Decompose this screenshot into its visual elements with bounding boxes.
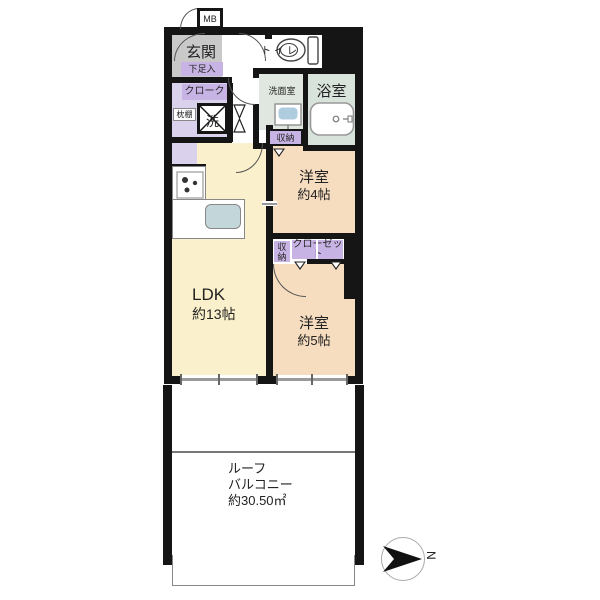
shoe-cabinet-label: 下足入 (181, 62, 223, 76)
north-label: N (424, 551, 438, 565)
balcony-rail-right (355, 385, 364, 565)
wall-under-cloak (164, 137, 232, 143)
bathroom-label: 浴室 (308, 80, 355, 101)
sliding-window-icon-1 (180, 375, 258, 385)
sliding-door-tick (262, 203, 277, 205)
wall-under-toilet (253, 68, 363, 74)
wall-block-mid-right (344, 233, 355, 299)
wall-under-entrance (164, 77, 232, 83)
entrance-label: 玄関 (186, 41, 216, 62)
ldk-size: 約13帖 (192, 304, 236, 324)
stove-icon (176, 171, 204, 199)
balcony-divider-line (172, 451, 355, 453)
wall-under-bath (303, 145, 363, 151)
folding-door-icon (233, 104, 246, 133)
toilet-label: トイレ (261, 42, 313, 57)
pillow-shelf-label: 枕棚 (173, 108, 196, 121)
sliding-window-icon-2 (276, 375, 348, 385)
wall-right (355, 27, 363, 384)
ldk-label: LDK (192, 285, 225, 305)
balcony-rail-left (163, 385, 172, 565)
cloak-label: クローク (182, 84, 227, 100)
western-room-5-size: 約5帖 (273, 330, 355, 349)
north-arrow-icon (379, 543, 427, 575)
meter-box: MB (197, 8, 223, 29)
mid-storage-label: 収納 (274, 241, 290, 262)
wall-ldk-bedrooms (266, 125, 273, 383)
balcony-outline (172, 555, 355, 586)
washer-label: 洗 (200, 111, 225, 130)
closet-divider (316, 240, 318, 259)
bathtub-icon (309, 101, 355, 138)
hall-storage-label: 収納 (268, 129, 303, 146)
wall-washroom-left-a (253, 68, 259, 78)
balcony-size: 約30.50㎡ (228, 493, 348, 509)
closet-folding-icon-1 (294, 261, 306, 270)
balcony-area: ルーフ バルコニー 約30.50㎡ (228, 461, 348, 509)
western-room-4-size: 約4帖 (273, 184, 355, 203)
washbasin-icon (274, 103, 302, 130)
wall-block-top-right (322, 27, 363, 73)
floor-plan: MB 玄関 下足入 クローク 枕棚 洗 トイレ 洗面室 収納 浴室 (0, 0, 600, 600)
kitchen-sink-icon (205, 204, 241, 229)
meter-box-label: MB (200, 14, 220, 24)
hall-storage-folding-icon (273, 148, 285, 157)
washer-box: 洗 (197, 103, 228, 134)
balcony-label-line1: ルーフ (228, 461, 348, 477)
washroom-label: 洗面室 (262, 84, 302, 97)
balcony-label-line2: バルコニー (228, 477, 348, 493)
closet-folding-icon-2 (330, 261, 342, 270)
